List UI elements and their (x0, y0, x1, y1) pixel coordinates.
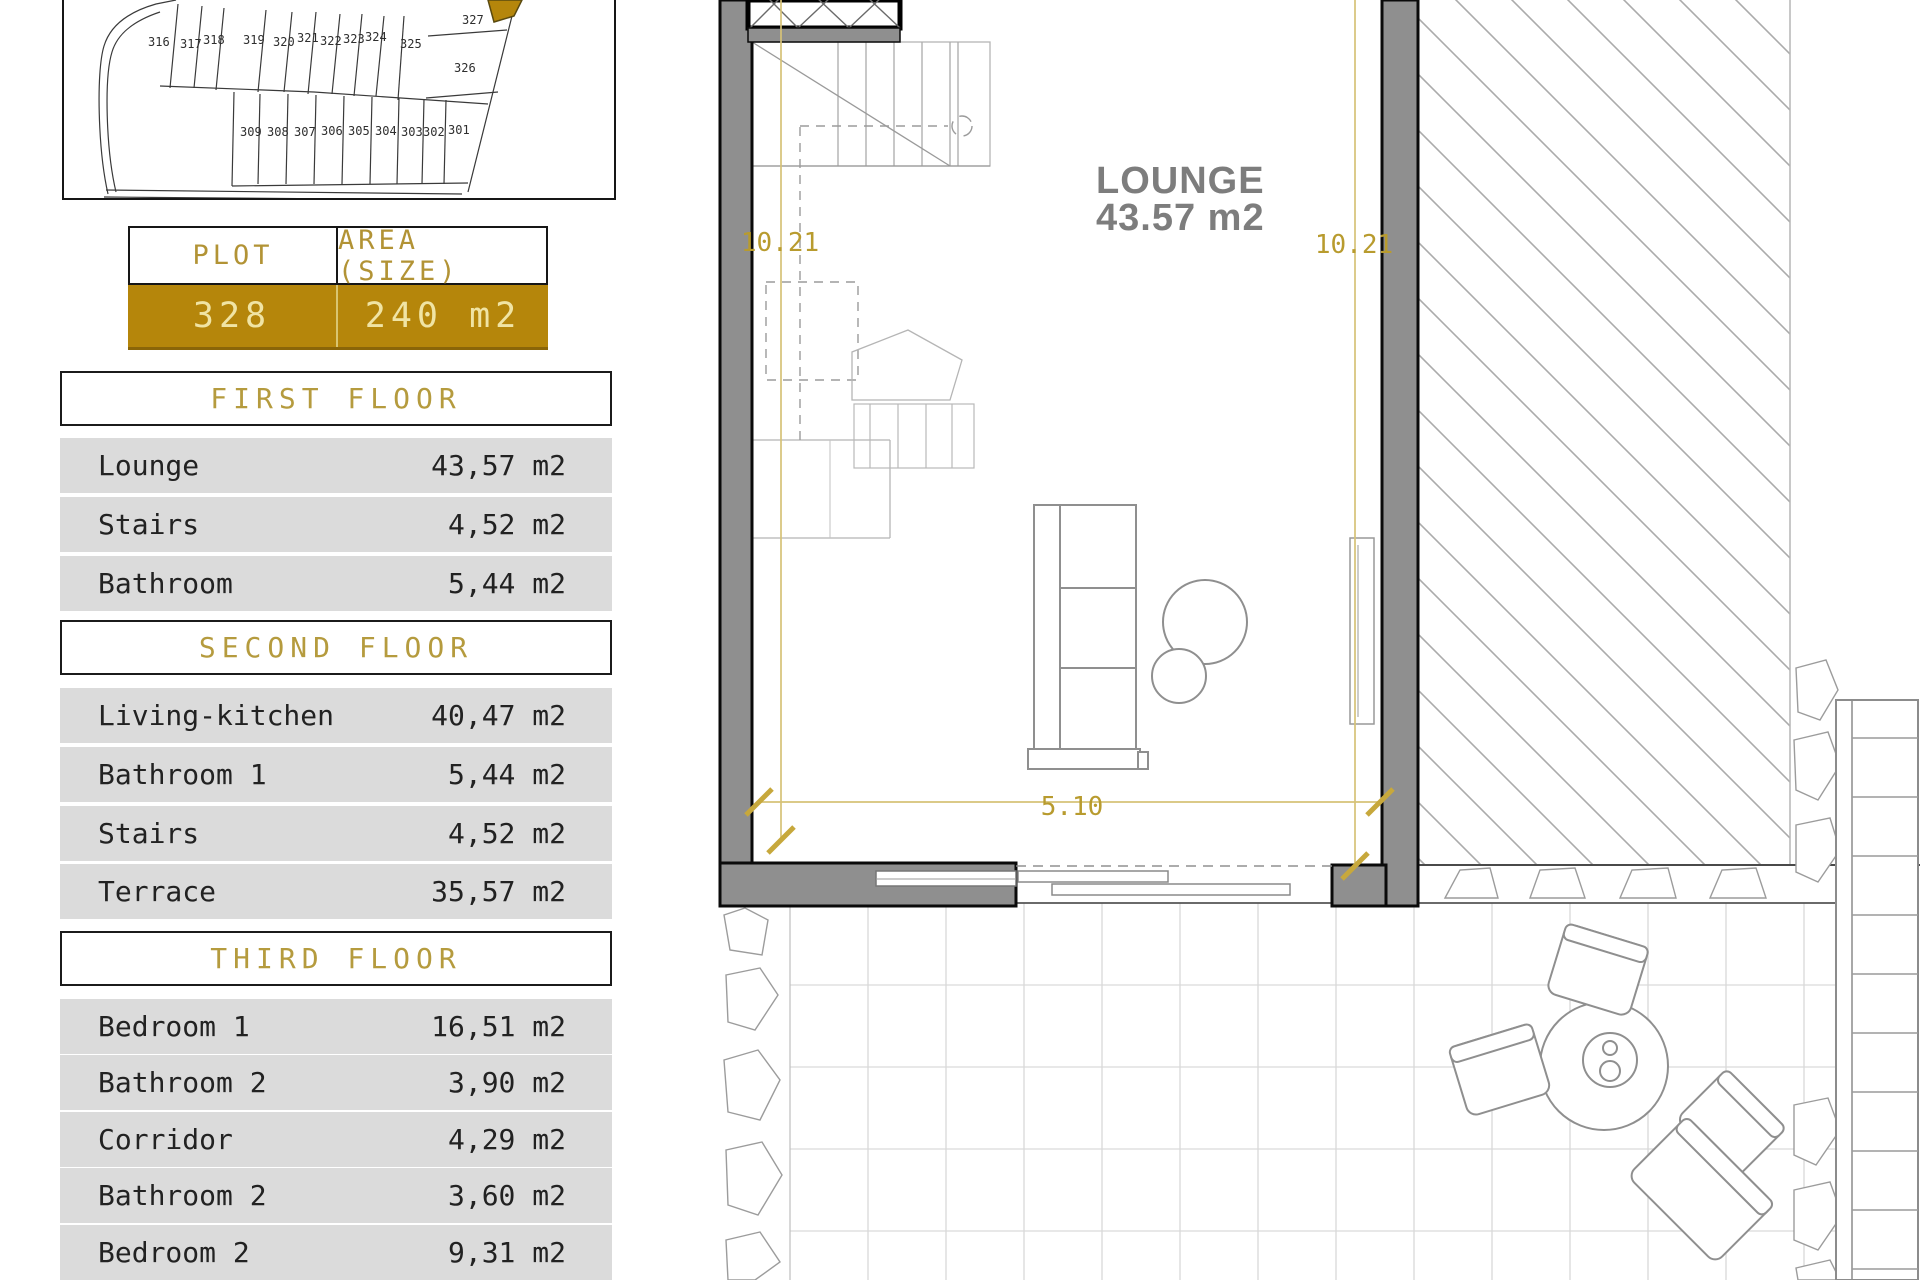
room-area-label: 43.57 m2 (1096, 200, 1265, 236)
staircase (752, 42, 990, 538)
dimension-left: 10.21 (734, 228, 826, 258)
brochure-page: 316 317 318 319 320 321 322 323 324 325 … (0, 0, 1920, 1280)
coffee-tables (1152, 580, 1247, 703)
sofa (1028, 505, 1148, 769)
sliding-door (1016, 866, 1332, 895)
room-name-label: LOUNGE (1096, 163, 1265, 199)
terrace-table (1540, 1002, 1668, 1130)
exterior-stairs (1836, 700, 1918, 1280)
hatched-area (1418, 0, 1790, 865)
top-window (748, 0, 900, 42)
dimension-right: 10.21 (1308, 230, 1400, 260)
walls (720, 0, 1418, 906)
floor-plan-svg (0, 0, 1920, 1280)
dimension-width: 5.10 (1020, 792, 1124, 822)
side-window (1350, 538, 1374, 724)
